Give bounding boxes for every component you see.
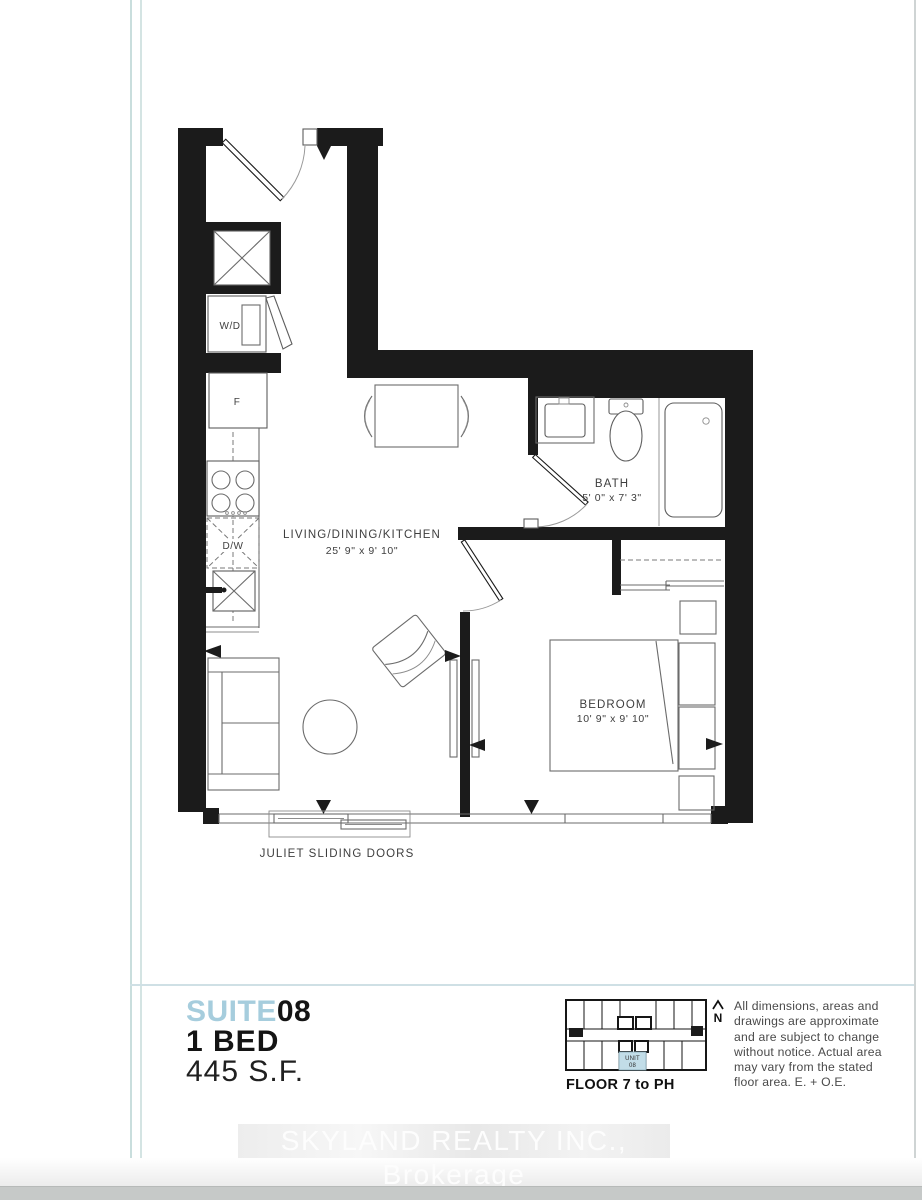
stove xyxy=(207,461,259,516)
bedroom-closet xyxy=(620,560,724,590)
watermark: SKYLAND REALTY INC., Brokerage xyxy=(238,1124,670,1158)
nightstand-top xyxy=(680,601,716,634)
suite-series-label: SUITE xyxy=(186,995,277,1028)
disclaimer-line: and are subject to change xyxy=(734,1030,919,1045)
keyplan: UNIT 08 FLOOR 7 to PH xyxy=(566,1000,706,1093)
dining-table xyxy=(365,385,469,447)
bedroom-label: BEDROOM xyxy=(579,699,646,711)
bath-dims: 5' 0" x 7' 3" xyxy=(582,492,642,504)
disclaimer: All dimensions, areas and drawings are a… xyxy=(734,999,919,1091)
north-label: N xyxy=(714,1011,723,1025)
keyplan-floor-label: FLOOR 7 to PH xyxy=(566,1077,675,1093)
suite-number: 08 xyxy=(277,995,311,1028)
living-room-label: LIVING/DINING/KITCHEN xyxy=(283,529,441,541)
disclaimer-line: without notice. Actual area xyxy=(734,1045,919,1060)
suite-type: 1 BED xyxy=(186,1027,311,1057)
floorplan-page: W/D F xyxy=(0,0,922,1200)
bath-door xyxy=(533,455,588,527)
juliet-sliding-doors xyxy=(269,811,410,837)
bath-label: BATH xyxy=(595,478,629,490)
suite-area: 445 S.F. xyxy=(186,1057,311,1087)
suite-number-line: SUITE08 xyxy=(186,997,311,1027)
north-arrow-icon: N xyxy=(713,1001,723,1025)
living-room-dims: 25' 9" x 9' 10" xyxy=(326,545,398,557)
disclaimer-line: drawings are approximate xyxy=(734,1014,919,1029)
washer-dryer-label: W/D xyxy=(220,321,241,332)
suite-title: SUITE08 1 BED 445 S.F. xyxy=(186,997,311,1087)
fridge-label: F xyxy=(234,397,241,408)
juliet-doors-label: JULIET SLIDING DOORS xyxy=(260,848,415,860)
disclaimer-line: All dimensions, areas and xyxy=(734,999,919,1014)
disclaimer-line: floor area. E. + O.E. xyxy=(734,1075,919,1090)
bathtub xyxy=(665,403,722,517)
bath-vanity xyxy=(536,397,594,443)
keyplan-unit-highlight: UNIT 08 xyxy=(619,1052,646,1070)
washer-dryer: W/D xyxy=(208,296,292,352)
toilet xyxy=(609,399,643,461)
armchair xyxy=(372,614,447,688)
coffee-table xyxy=(303,700,357,754)
bedroom-dims: 10' 9" x 9' 10" xyxy=(577,713,649,725)
entry-door xyxy=(222,129,331,201)
bottom-bar xyxy=(0,1186,922,1200)
dishwasher-label: D/W xyxy=(223,541,244,552)
keyplan-unit-line1: UNIT xyxy=(625,1056,640,1062)
shaft-closet xyxy=(206,222,281,294)
sofa xyxy=(208,658,279,790)
nightstand-bottom xyxy=(679,776,714,810)
keyplan-unit-line2: 08 xyxy=(629,1063,637,1069)
disclaimer-line: may vary from the stated xyxy=(734,1060,919,1075)
fridge: F xyxy=(209,373,267,428)
kitchen-sink xyxy=(204,571,255,611)
